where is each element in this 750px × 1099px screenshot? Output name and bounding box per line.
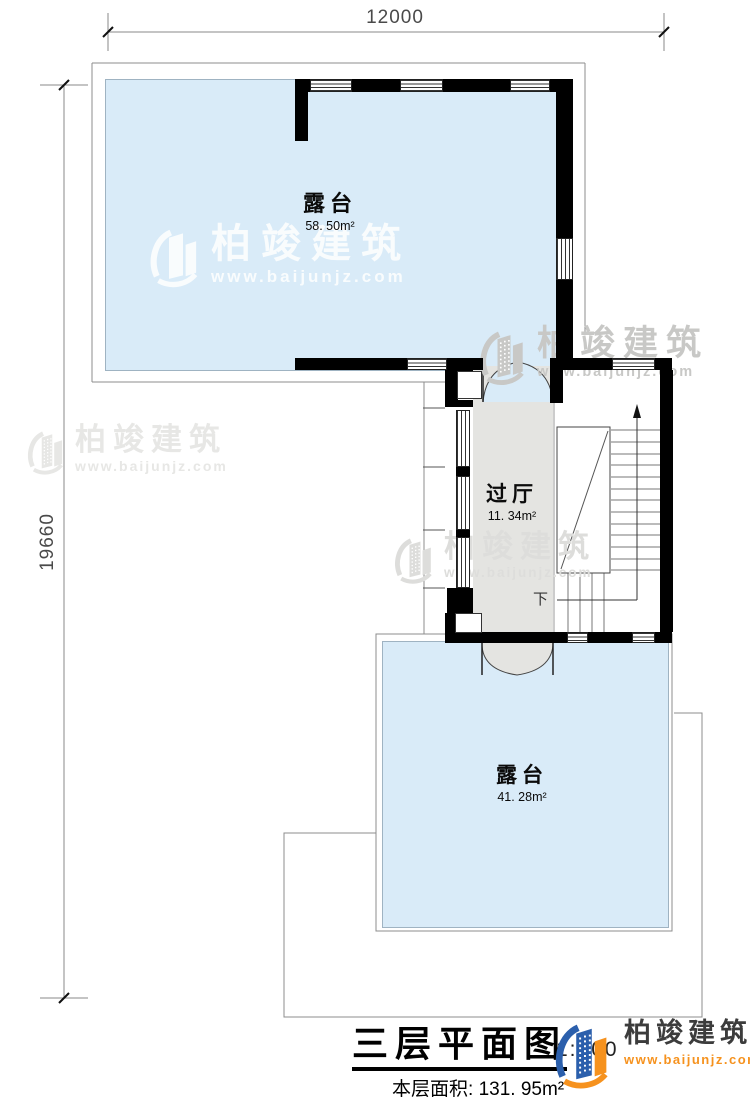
window [612,358,655,370]
company-logo: 柏竣建筑 www.baijunjz.com [548,1020,750,1090]
room-label-hallway: 过厅 11. 34m² [452,483,572,523]
window [456,410,470,467]
window [510,79,550,92]
room-name: 露台 [265,192,395,216]
wall [556,92,573,358]
wall [660,370,673,632]
window [556,238,573,280]
window-mullion [456,467,470,476]
window [456,537,470,588]
company-name: 柏竣建筑 [624,1020,750,1047]
wall [445,400,473,407]
room-label-lower-terrace: 露台 41. 28m² [462,764,582,804]
plan-linework [0,0,750,1099]
staircase [557,404,660,632]
door-upper [483,356,553,402]
shaft-box [457,371,482,399]
window [567,632,588,643]
upper-terrace-outline [92,63,585,634]
window [407,358,447,370]
company-url: www.baijunjz.com [624,1052,750,1067]
floor-area-line: 本层面积: 131. 95m² [392,1074,564,1099]
company-logo-icon [548,1020,620,1090]
room-area: 11. 34m² [452,509,572,523]
drawing-title: 三层平面图 [352,1026,567,1071]
dimension-top-value: 12000 [330,7,460,29]
room-label-upper-terrace: 露台 58. 50m² [265,192,395,233]
room-area: 41. 28m² [462,790,582,804]
room-name: 露台 [462,764,582,787]
window-mullion [456,530,470,537]
floor-plan-sheet: 柏竣建筑 www.baijunjz.com 柏竣建筑 www.baijunjz.… [0,0,750,1099]
up-arrow-icon [633,404,641,418]
stair-down-label: 下 [533,588,548,609]
wall [447,588,473,613]
room-area: 58. 50m² [265,219,395,233]
shaft-box [455,613,482,633]
floor-area-label: 本层面积: [392,1079,473,1099]
room-name: 过厅 [452,483,572,506]
window [632,632,655,643]
window [400,79,443,92]
sill-ticks [423,408,445,588]
roof-outline [284,713,702,1017]
window [310,79,352,92]
dimension-left-value: 19660 [37,492,59,592]
